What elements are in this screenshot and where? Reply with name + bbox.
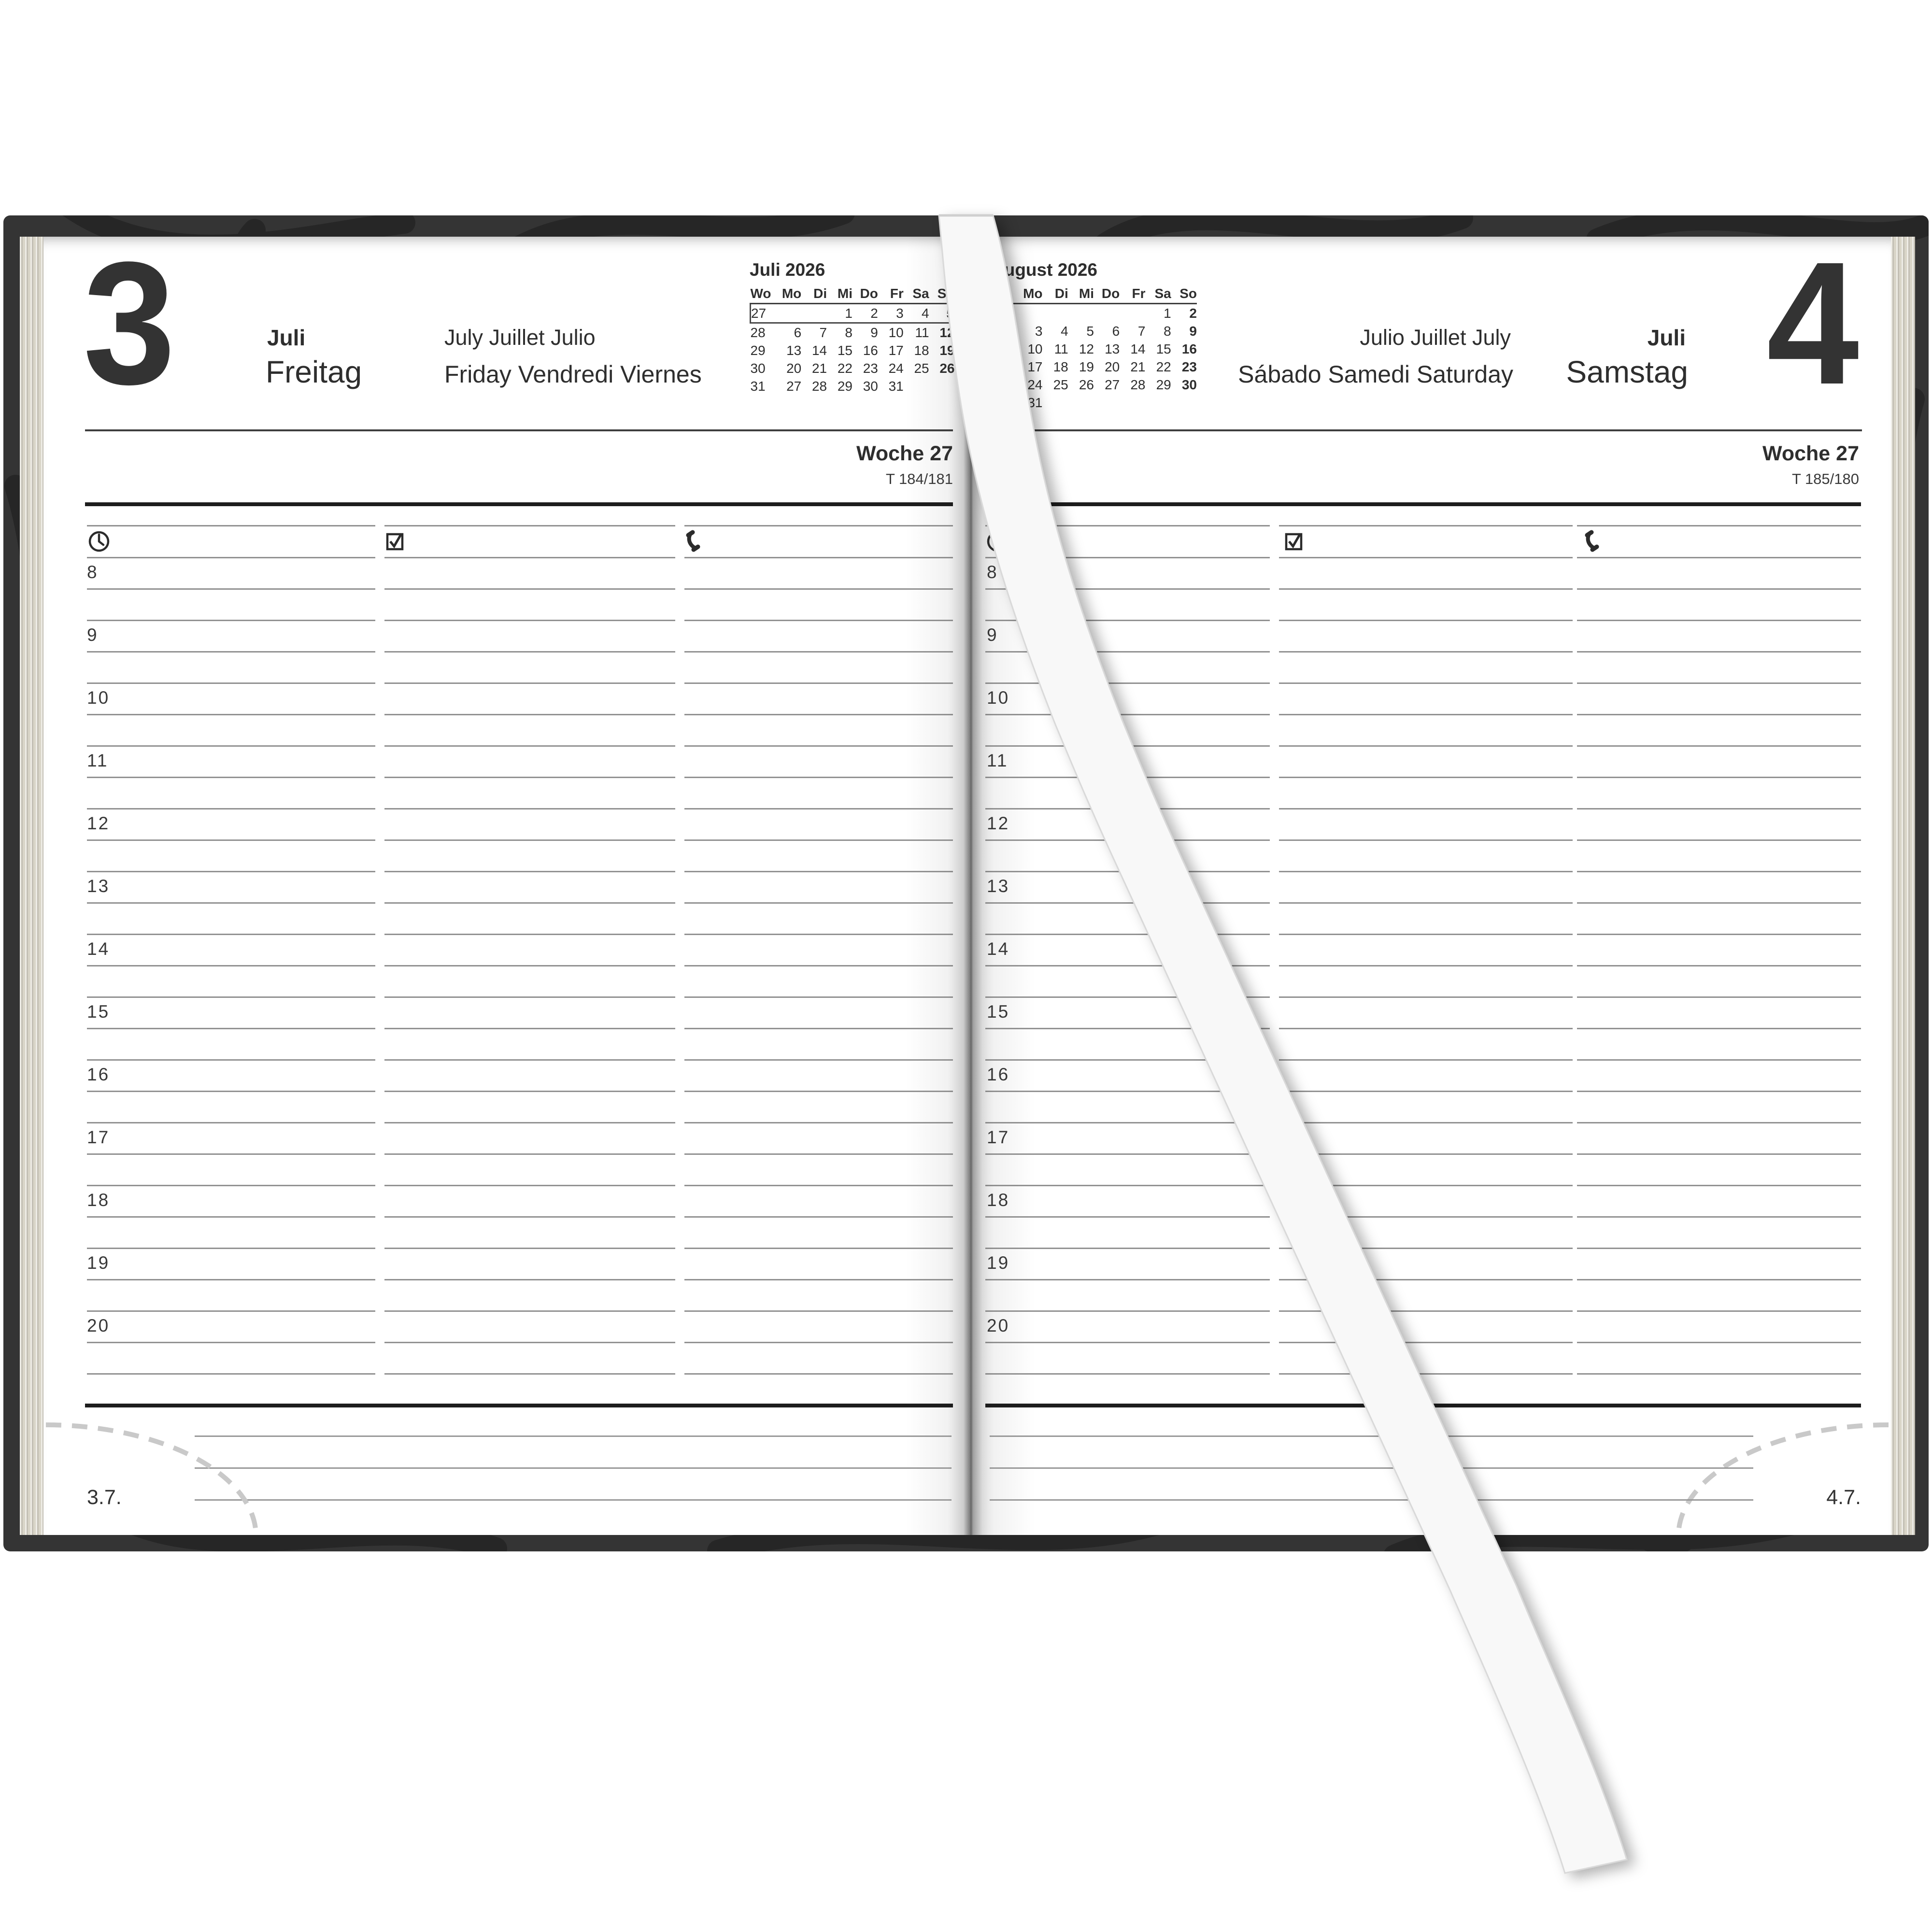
grid-line [684,1342,953,1343]
grid-line [1577,777,1861,778]
grid-line [985,651,1270,653]
header-rule-left [85,429,953,431]
calendar-day-cell [776,304,801,323]
grid-line [684,682,953,684]
calendar-week-number: 36 [991,394,1017,412]
grid-line [684,1373,953,1375]
grid-line [384,934,675,935]
grid-line [87,996,375,998]
grid-line [384,1185,675,1186]
clock-icon [986,530,1009,553]
calendar-day-cell: 8 [827,323,852,342]
grid-line [384,1122,675,1123]
calendar-day-cell: 29 [827,377,852,395]
grid-line [1279,1373,1573,1375]
calendar-day-cell [904,377,929,395]
weekday-translations-right: Sábado Samedi Saturday [1238,362,1513,386]
calendar-day-cell [1120,394,1145,412]
calendar-day-cell [1120,304,1145,323]
calendar-week-number: 29 [751,341,776,359]
grid-line [985,588,1270,590]
grid-line [384,902,675,904]
grid-line [684,934,953,935]
grid-line [1577,1059,1861,1061]
grid-line [87,934,375,935]
grid-line [684,839,953,841]
grid-line [684,1185,953,1186]
grid-line [1279,620,1573,621]
calendar-day-cell: 8 [1146,322,1171,340]
grid-line [684,745,953,747]
grid-line [384,1059,675,1061]
calendar-day-cell: 25 [904,359,929,377]
grid-line [1577,525,1861,526]
calendar-day-cell [801,304,827,323]
grid-line [384,745,675,747]
calendar-day-cell: 28 [1120,376,1145,394]
calendar-day-cell: 2 [1171,304,1197,323]
grid-line [1577,1091,1861,1092]
calendar-weekday: Fr [1120,284,1145,304]
grid-line [985,1059,1270,1061]
separator-thick-right-top [985,502,1861,506]
calendar-day-cell: 4 [904,304,929,323]
separator-thick-right-bottom [985,1404,1861,1407]
grid-line [985,1153,1270,1155]
grid-line [384,1091,675,1092]
grid-line [87,588,375,590]
grid-line [384,1373,675,1375]
grid-line [1577,714,1861,715]
calendar-day-cell: 5 [929,304,955,323]
grid-line [985,1373,1270,1375]
grid-line [1577,965,1861,966]
calendar-day-cell [1171,394,1197,412]
calendar-week-number: 31 [751,377,776,395]
grid-line [1577,808,1861,810]
month-translations-left: July Juillet Julio [444,327,596,348]
grid-line [1577,682,1861,684]
calendar-day-cell: 2 [852,304,878,323]
grid-line [985,1122,1270,1123]
calendar-day-cell [929,377,955,395]
calendar-day-cell: 11 [904,323,929,342]
hour-label: 14 [987,940,1009,958]
grid-line [1279,1059,1573,1061]
calendar-weekday: Sa [1146,284,1171,304]
calendar-day-cell: 27 [1094,376,1120,394]
calendar-weekday: Sa [904,284,929,304]
grid-line [1577,839,1861,841]
footer-date-left: 3.7. [87,1486,122,1509]
grid-line [1577,1185,1861,1186]
mini-calendar-table: WoMoDiMiDoFrSaSo271234528678910111229131… [750,284,955,395]
calendar-day-cell: 14 [1120,340,1145,358]
grid-line [384,839,675,841]
calendar-day-cell: 11 [1043,340,1068,358]
page-stack-edge-left [20,237,43,1535]
grid-line [985,745,1270,747]
grid-line [985,620,1270,621]
grid-line [384,620,675,621]
calendar-day-cell: 24 [878,359,904,377]
grid-line [1279,714,1573,715]
calendar-day-cell: 22 [827,359,852,377]
hour-label: 15 [87,1003,110,1021]
grid-line [87,871,375,872]
calendar-weekday: Di [1043,284,1068,304]
grid-line [87,1248,375,1249]
calendar-day-cell: 10 [1017,340,1042,358]
calendar-day-cell: 16 [1171,340,1197,358]
calendar-day-cell: 22 [1146,358,1171,376]
grid-line [684,525,953,526]
calendar-day-cell: 30 [852,377,878,395]
grid-line [1279,996,1573,998]
hour-label: 8 [987,563,998,581]
grid-line [985,1216,1270,1218]
hour-label: 12 [987,814,1009,832]
weekday-label-right: Samstag [1566,356,1688,387]
clock-icon [87,530,111,553]
notes-line [195,1467,952,1469]
grid-line [87,1373,375,1375]
grid-line [1279,1153,1573,1155]
calendar-week-number: 33 [991,340,1017,358]
calendar-week-number: 35 [991,376,1017,394]
calendar-day-cell: 19 [1068,358,1094,376]
grid-line [1577,1373,1861,1375]
calendar-day-cell: 25 [1043,376,1068,394]
grid-line [1279,1091,1573,1092]
calendar-day-cell: 6 [1094,322,1120,340]
grid-line [1577,1279,1861,1280]
grid-line [1279,1310,1573,1312]
grid-line [384,808,675,810]
grid-line [87,839,375,841]
grid-line [985,682,1270,684]
calendar-day-cell: 17 [1017,358,1042,376]
calendar-weekday: Mi [827,284,852,304]
calendar-day-cell: 5 [1068,322,1094,340]
grid-line [985,965,1270,966]
grid-line [87,745,375,747]
calendar-weekday: Wo [991,284,1017,304]
grid-line [384,682,675,684]
grid-line [1279,965,1573,966]
grid-line [985,1342,1270,1343]
calendar-day-cell: 21 [801,359,827,377]
grid-line [684,1248,953,1249]
grid-line [1279,777,1573,778]
grid-line [384,588,675,590]
calendar-day-cell: 28 [801,377,827,395]
month-label-right: Juli [1648,327,1686,349]
month-translations-right: Julio Juillet July [1360,327,1511,348]
hour-label: 10 [87,689,110,707]
hour-label: 18 [987,1191,1009,1209]
calendar-day-cell: 23 [1171,358,1197,376]
calendar-day-cell [1068,394,1094,412]
hour-label: 9 [87,626,99,644]
grid-line [985,996,1270,998]
calendar-day-cell [1146,394,1171,412]
grid-line [985,1091,1270,1092]
hour-label: 9 [987,626,998,644]
hour-label: 20 [987,1317,1009,1335]
calendar-day-cell: 26 [1068,376,1094,394]
calendar-week-number: 34 [991,358,1017,376]
grid-line [1577,934,1861,935]
grid-line [684,777,953,778]
calendar-day-cell [1094,394,1120,412]
grid-line [985,839,1270,841]
phone-icon [1582,530,1605,553]
calendar-week-number: 31 [991,304,1017,323]
grid-line [684,620,953,621]
notes-line [990,1499,1753,1501]
calendar-weekday: Do [852,284,878,304]
calendar-day-cell [1043,394,1068,412]
grid-line [87,1059,375,1061]
grid-line [87,1279,375,1280]
calendar-weekday: So [929,284,955,304]
hour-label: 8 [87,563,99,581]
calendar-day-cell [1094,304,1120,323]
day-of-year-right: T 185/180 [1792,471,1859,486]
grid-line [87,1122,375,1123]
grid-line [1577,1342,1861,1343]
grid-line [87,525,375,526]
hour-label: 19 [87,1254,110,1272]
grid-line [1279,1279,1573,1280]
calendar-day-cell: 3 [878,304,904,323]
grid-line [87,714,375,715]
calendar-weekday: Fr [878,284,904,304]
grid-line [1577,1216,1861,1218]
grid-line [87,682,375,684]
grid-line [1577,745,1861,747]
grid-line [684,1059,953,1061]
grid-line [684,714,953,715]
grid-line [985,1028,1270,1029]
grid-line [1279,902,1573,904]
grid-line [1279,808,1573,810]
grid-line [87,1091,375,1092]
hour-label: 17 [987,1128,1009,1146]
grid-line [1577,1153,1861,1155]
calendar-weekday: Mo [776,284,801,304]
calendar-day-cell: 27 [776,377,801,395]
hour-label: 10 [987,689,1009,707]
grid-line [684,557,953,558]
grid-line [985,1185,1270,1186]
grid-line [87,1216,375,1218]
grid-line [384,651,675,653]
grid-line [1279,1122,1573,1123]
notes-line [195,1435,952,1437]
grid-line [87,1153,375,1155]
grid-line [684,1122,953,1123]
calendar-day-cell: 9 [1171,322,1197,340]
grid-line [1577,1028,1861,1029]
calendar-weekday: Wo [751,284,776,304]
separator-thick-left-top [85,502,953,506]
grid-line [1577,588,1861,590]
us-holiday-badge: US [991,443,1020,468]
grid-line [1577,620,1861,621]
grid-line [1279,1216,1573,1218]
grid-line [684,1310,953,1312]
grid-line [684,588,953,590]
grid-line [684,1153,953,1155]
weekday-translations-left: Friday Vendredi Viernes [444,362,702,386]
calendar-day-cell [1043,304,1068,323]
calendar-day-cell: 18 [904,341,929,359]
grid-line [384,1310,675,1312]
calendar-weekday: So [1171,284,1197,304]
calendar-day-cell [1068,304,1094,323]
calendar-day-cell: 19 [929,341,955,359]
separator-thick-left-bottom [85,1404,953,1407]
grid-line [384,777,675,778]
calendar-day-cell: 15 [827,341,852,359]
open-diary-photo: 3 Juli Freitag July Juillet Julio Friday… [0,0,1932,1932]
grid-line [1577,902,1861,904]
grid-line [684,996,953,998]
notes-line [195,1499,952,1501]
hour-label: 14 [87,940,110,958]
hour-label: 18 [87,1191,110,1209]
calendar-day-cell: 30 [1171,376,1197,394]
grid-line [87,557,375,558]
grid-line [985,1279,1270,1280]
calendar-week-number: 30 [751,359,776,377]
hour-label: 16 [87,1065,110,1083]
calendar-day-cell: 4 [1043,322,1068,340]
grid-line [384,1342,675,1343]
grid-line [384,525,675,526]
grid-line [1279,525,1573,526]
calendar-day-cell: 26 [929,359,955,377]
grid-line [684,808,953,810]
grid-line [985,777,1270,778]
grid-line [684,1091,953,1092]
day-number-left: 3 [83,255,173,391]
calendar-day-cell: 21 [1120,358,1145,376]
weekday-label-left: Freitag [266,356,362,387]
grid-line [384,871,675,872]
calendar-weekday: Mi [1068,284,1094,304]
checkbox-icon [1282,530,1306,553]
mini-calendar-title: August 2026 [991,261,1197,279]
calendar-day-cell: 24 [1017,376,1042,394]
grid-line [684,1216,953,1218]
grid-line [384,1028,675,1029]
mini-calendar-july: Juli 2026 WoMoDiMiDoFrSaSo27123452867891… [750,261,955,395]
grid-line [1279,588,1573,590]
grid-line [985,525,1270,526]
hour-label: 11 [87,752,108,769]
notes-line [990,1467,1753,1469]
hour-label: 15 [987,1003,1009,1021]
calendar-day-cell: 14 [801,341,827,359]
hour-label: 19 [987,1254,1009,1272]
grid-line [1279,839,1573,841]
header-rule-right [985,429,1862,431]
grid-line [1279,1028,1573,1029]
calendar-day-cell: 1 [827,304,852,323]
grid-line [1577,557,1861,558]
grid-line [384,1153,675,1155]
calendar-day-cell: 10 [878,323,904,342]
grid-line [985,1310,1270,1312]
calendar-week-number: 32 [991,322,1017,340]
grid-line [87,777,375,778]
notes-line [990,1435,1753,1437]
grid-line [1577,1310,1861,1312]
grid-line [1577,871,1861,872]
grid-line [1279,871,1573,872]
calendar-day-cell: 13 [1094,340,1120,358]
calendar-day-cell: 16 [852,341,878,359]
grid-line [384,1248,675,1249]
grid-line [684,965,953,966]
calendar-day-cell: 20 [1094,358,1120,376]
week-label-left: Woche 27 [856,443,953,464]
grid-line [384,965,675,966]
page-left [43,237,971,1535]
grid-line [1577,651,1861,653]
grid-line [684,1028,953,1029]
calendar-day-cell: 3 [1017,322,1042,340]
calendar-day-cell: 31 [878,377,904,395]
mini-calendar-table: WoMoDiMiDoFrSaSo311232345678933101112131… [991,284,1197,412]
calendar-week-number: 27 [751,304,776,323]
grid-line [1279,934,1573,935]
day-number-right: 4 [1766,255,1856,391]
calendar-day-cell: 13 [776,341,801,359]
mini-calendar-august: August 2026 WoMoDiMiDoFrSaSo311232345678… [991,261,1197,412]
calendar-day-cell: 15 [1146,340,1171,358]
hour-label: 20 [87,1317,110,1335]
grid-line [87,1185,375,1186]
calendar-day-cell: 12 [1068,340,1094,358]
calendar-day-cell: 20 [776,359,801,377]
page-right [971,237,1891,1535]
grid-line [87,902,375,904]
grid-line [87,651,375,653]
grid-line [985,557,1270,558]
grid-line [1279,557,1573,558]
calendar-day-cell: 7 [1120,322,1145,340]
grid-line [1577,996,1861,998]
grid-line [985,1248,1270,1249]
grid-line [384,714,675,715]
grid-line [1279,1185,1573,1186]
grid-line [87,1342,375,1343]
day-of-year-left: T 184/181 [886,471,953,486]
grid-line [1279,1248,1573,1249]
grid-line [87,620,375,621]
grid-line [87,1310,375,1312]
calendar-day-cell [1017,304,1042,323]
grid-line [684,1279,953,1280]
calendar-day-cell: 12 [929,323,955,342]
hour-label: 13 [87,877,110,895]
month-label-left: Juli [267,327,305,349]
calendar-weekday: Di [801,284,827,304]
